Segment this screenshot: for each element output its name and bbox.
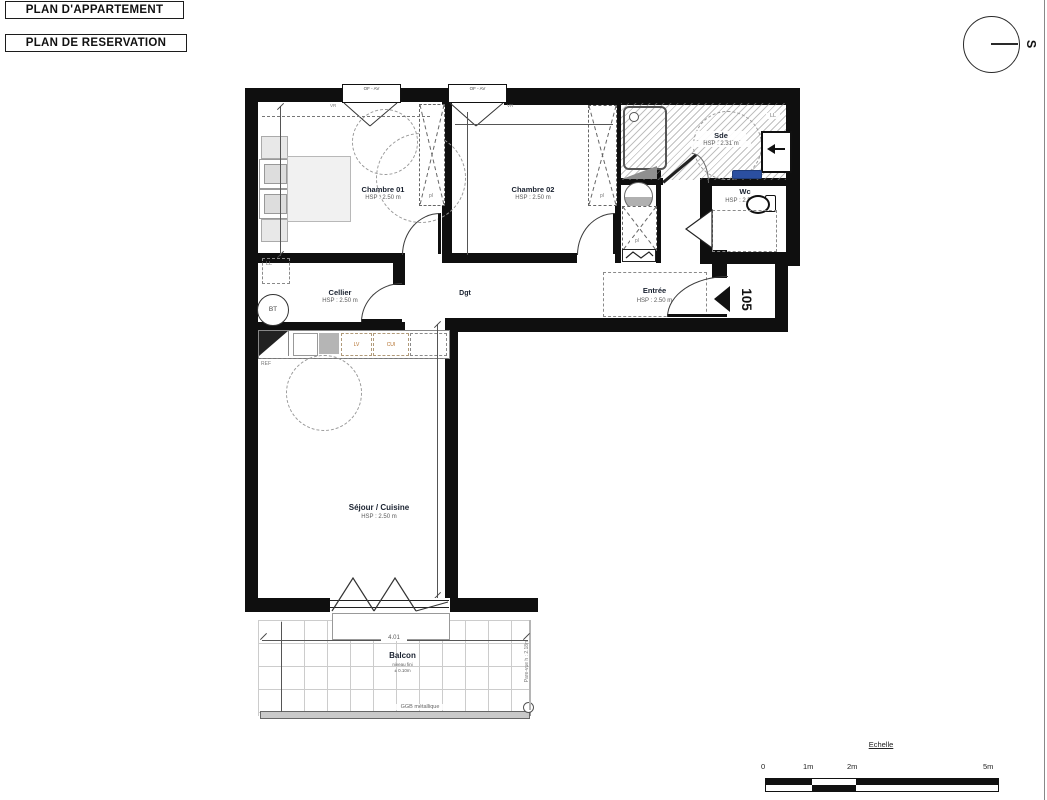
- furniture-wardrobe-inner: [264, 164, 287, 184]
- balcony-width-dimension: 4.01: [381, 635, 407, 641]
- window-arrow-line: [775, 148, 785, 150]
- room-hsp-cellier: HSP : 2.50 m: [305, 298, 375, 304]
- cooker-label: CUI: [387, 342, 396, 348]
- furniture-wardrobe-inner: [264, 194, 287, 214]
- furniture-nightstand: [261, 219, 288, 242]
- wall-segment: [445, 330, 458, 612]
- scale-bar-segment: [856, 779, 998, 785]
- dimension-line: [281, 622, 282, 712]
- scale-title: Echelle: [855, 740, 907, 749]
- scale-bar-segment: [766, 779, 812, 785]
- scale-bar-segment: [812, 785, 856, 791]
- room-hsp-sde: HSP : 2.31 m: [691, 141, 751, 147]
- counter-slot: [410, 333, 447, 356]
- wall-segment: [245, 88, 258, 612]
- closet-label: pl: [630, 238, 644, 244]
- counter-dashed-line: [258, 358, 448, 359]
- turning-circle: [286, 355, 362, 431]
- closet-hall: [622, 206, 657, 251]
- radiator-icon: [622, 249, 656, 262]
- room-label-balcon: Balcon: [375, 651, 430, 660]
- compass-needle: [991, 43, 1018, 45]
- furniture-nightstand: [261, 136, 288, 159]
- balcony-note1: niveau fini: [375, 662, 430, 667]
- wall-segment: [786, 88, 800, 266]
- closet-label: pl: [424, 193, 438, 199]
- scale-tick-0: 0: [761, 762, 771, 771]
- wall-segment: [450, 598, 538, 612]
- window-type-label: OF - AV: [470, 86, 486, 91]
- railing-label: GGB métallique: [380, 704, 460, 710]
- door-swing-wc: [682, 207, 714, 251]
- kitchen-sink-unit: [319, 333, 339, 354]
- page-border: [1044, 0, 1045, 800]
- room-hsp-sejour: HSP : 2.50 m: [333, 514, 425, 520]
- dishwasher-slot: LV: [341, 333, 372, 356]
- cooker-slot: CUI: [373, 333, 409, 356]
- wall-segment: [393, 253, 405, 285]
- plan-title-appartement: PLAN D'APPARTEMENT: [5, 1, 184, 19]
- unit-number: 105: [723, 285, 769, 313]
- closet-label: pl: [595, 193, 609, 199]
- dishwasher-label: LV: [354, 342, 360, 348]
- shutter-label: VR: [330, 103, 336, 108]
- wall-segment: [245, 598, 330, 612]
- plan-title-appartement-text: PLAN D'APPARTEMENT: [26, 4, 164, 16]
- shower-drain: [629, 112, 639, 122]
- wall-segment: [445, 318, 788, 332]
- room-label-cellier: Cellier: [305, 288, 375, 297]
- scale-tick-1m: 1m: [803, 762, 819, 771]
- wall-segment: [712, 250, 727, 278]
- room-label-dgt: Dgt: [440, 290, 490, 297]
- door-arc-chambre02: [577, 213, 615, 255]
- washer-label: LL: [766, 113, 780, 119]
- washer-label: LL: [266, 261, 272, 267]
- wall-segment: [399, 88, 448, 102]
- balcony-railing: [260, 711, 530, 719]
- fridge-label: REF: [261, 361, 271, 367]
- bay-door-swing: [328, 574, 452, 612]
- wall-segment: [245, 88, 345, 102]
- kitchen-corner-frame: [259, 331, 289, 356]
- wc-accessibility-zone: [712, 210, 777, 252]
- shutter-label: VR: [507, 103, 513, 108]
- floor-plan-page: PLAN D'APPARTEMENT PLAN DE RESERVATION S…: [0, 0, 1047, 800]
- balcony-note2: ± 0.10m: [375, 668, 430, 673]
- plan-title-reservation-text: PLAN DE RESERVATION: [26, 37, 167, 49]
- compass-south-label: S: [1022, 36, 1038, 52]
- dimension-line: [280, 106, 281, 256]
- plan-title-reservation: PLAN DE RESERVATION: [5, 34, 187, 52]
- room-hsp-chambre01: HSP : 2.50 m: [343, 195, 423, 201]
- wall-segment: [775, 264, 788, 318]
- window-arrow-icon: [767, 144, 775, 154]
- closet-chambre02: [588, 105, 617, 206]
- water-heater: BT: [257, 294, 289, 326]
- dimension-line: [467, 112, 468, 255]
- furniture-bed: [287, 156, 351, 222]
- room-label-chambre02: Chambre 02: [493, 185, 573, 194]
- closet-x-mark: [420, 105, 444, 205]
- window-sde: [761, 131, 792, 173]
- scale-tick-2m: 2m: [847, 762, 863, 771]
- closet-x-mark: [589, 106, 616, 205]
- unit-number-text: 105: [739, 288, 754, 311]
- scale-bar: [765, 778, 999, 792]
- kitchen-fridge: [293, 333, 318, 356]
- window-type-label: OF - AV: [364, 86, 380, 91]
- room-label-sde: Sde: [696, 131, 746, 140]
- room-label-sejour: Séjour / Cuisine: [323, 503, 435, 512]
- water-heater-label: BT: [269, 306, 277, 313]
- towel-radiator: [732, 170, 762, 179]
- dimension-line-dashed: [262, 116, 430, 117]
- wall-segment: [452, 253, 577, 263]
- room-hsp-chambre02: HSP : 2.50 m: [493, 195, 573, 201]
- dimension-line: [455, 124, 613, 125]
- room-label-chambre01: Chambre 01: [343, 185, 423, 194]
- scale-tick-5m: 5m: [983, 762, 999, 771]
- dimension-line: [437, 324, 438, 598]
